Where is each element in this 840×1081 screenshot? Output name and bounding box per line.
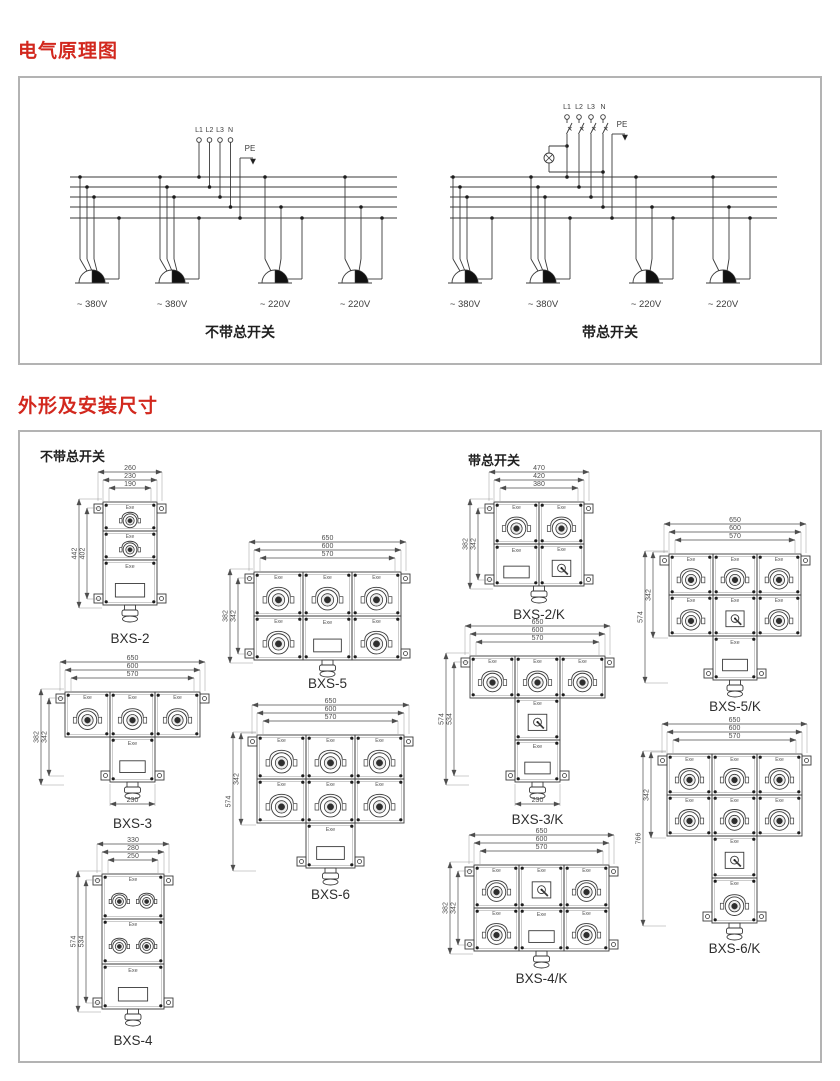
exe-label: Exe bbox=[512, 548, 521, 554]
dim-label: 600 bbox=[322, 543, 334, 550]
dim-label: 600 bbox=[325, 706, 337, 713]
wiring-diagram-canvas: L1L2L3NPE~ 380V~ 380V~ 220V~ 220V不带总开关L1… bbox=[20, 78, 818, 361]
exe-label: Exe bbox=[274, 575, 283, 581]
dim-label: 574 bbox=[638, 611, 645, 623]
mounting-ear bbox=[157, 594, 166, 603]
section-title-wiring: 电气原理图 bbox=[18, 36, 118, 63]
socket-icon bbox=[315, 794, 346, 817]
exe-label: Exe bbox=[492, 868, 501, 874]
voltage-label: ~ 380V bbox=[77, 299, 108, 310]
cable-gland bbox=[323, 868, 339, 885]
schematic-with-main-switch: L1L2L3NPE~ 380V~ 380V~ 220V~ 220V带总开关 bbox=[448, 104, 777, 340]
terminal-label: L2 bbox=[206, 127, 214, 134]
dim-label: 600 bbox=[127, 663, 139, 670]
mounting-ear bbox=[94, 504, 103, 513]
socket-icon bbox=[547, 517, 575, 538]
voltage-label: ~ 220V bbox=[340, 299, 371, 310]
socket-icon bbox=[136, 893, 156, 908]
mounting-ear bbox=[609, 867, 618, 876]
socket-icon bbox=[502, 517, 530, 538]
exe-label: Exe bbox=[537, 912, 546, 918]
model-caption: BXS-6 bbox=[311, 887, 350, 902]
exe-label: Exe bbox=[274, 619, 283, 625]
socket-icon bbox=[361, 631, 392, 654]
mounting-ear bbox=[404, 737, 413, 746]
socket-icon bbox=[765, 610, 793, 630]
nameplate bbox=[118, 988, 147, 1002]
dim-label: 574 bbox=[226, 796, 233, 808]
dimensions-panel: 不带总开关 带总开关 ExeExeExe260230190442402BXS-2… bbox=[18, 430, 822, 1063]
mounting-ear bbox=[248, 737, 257, 746]
exe-label: Exe bbox=[687, 557, 696, 563]
terminal-label: N bbox=[600, 104, 605, 111]
socket-icon bbox=[523, 671, 551, 692]
drawing-bxs-2: ExeExeExe260230190442402BXS-2 bbox=[72, 465, 167, 646]
nameplate bbox=[504, 566, 529, 578]
exe-label: Exe bbox=[730, 757, 739, 763]
socket-icon bbox=[266, 794, 297, 817]
mounting-ear bbox=[660, 556, 669, 565]
dim-label: 342 bbox=[42, 731, 49, 743]
socket-symbol bbox=[75, 175, 121, 283]
mounting-ear bbox=[401, 649, 410, 658]
section-title-dimensions: 外形及安装尺寸 bbox=[18, 391, 158, 418]
voltage-label: ~ 220V bbox=[260, 299, 291, 310]
dim-label: 230 bbox=[124, 473, 136, 480]
mounting-ear bbox=[757, 669, 766, 678]
schematic-caption: 带总开关 bbox=[582, 324, 638, 340]
exe-label: Exe bbox=[775, 757, 784, 763]
dim-label: 534 bbox=[447, 713, 454, 725]
mounting-ear bbox=[584, 575, 593, 584]
socket-icon bbox=[765, 569, 793, 589]
exe-label: Exe bbox=[537, 868, 546, 874]
exe-label: Exe bbox=[687, 598, 696, 604]
dim-label: 570 bbox=[322, 551, 334, 558]
exe-label: Exe bbox=[582, 911, 591, 917]
exe-label: Exe bbox=[731, 557, 740, 563]
rotary-switch-icon bbox=[532, 882, 551, 898]
dim-label: 190 bbox=[124, 481, 136, 488]
rotary-switch-icon bbox=[552, 560, 571, 576]
exe-label: Exe bbox=[129, 922, 138, 928]
nameplate bbox=[314, 639, 342, 652]
rotary-switch-icon bbox=[528, 714, 547, 730]
dim-label: 380 bbox=[533, 481, 545, 488]
mounting-ear bbox=[164, 998, 173, 1007]
socket-icon bbox=[315, 750, 346, 773]
dim-label: 650 bbox=[127, 655, 139, 662]
mounting-ear bbox=[355, 857, 364, 866]
exe-label: Exe bbox=[730, 881, 739, 887]
socket-icon bbox=[118, 709, 146, 730]
model-caption: BXS-4/K bbox=[516, 971, 568, 986]
dim-label: 570 bbox=[536, 844, 548, 851]
exe-label: Exe bbox=[83, 695, 92, 701]
model-caption: BXS-5 bbox=[308, 676, 347, 691]
socket-icon bbox=[765, 769, 793, 790]
dim-label: 260 bbox=[124, 465, 136, 472]
exe-label: Exe bbox=[326, 738, 335, 744]
exe-label: Exe bbox=[129, 877, 138, 883]
dim-label: 402 bbox=[80, 548, 87, 560]
exe-label: Exe bbox=[372, 619, 381, 625]
mounting-ear bbox=[245, 574, 254, 583]
socket-icon bbox=[720, 769, 748, 790]
drawing-bxs-3: ExeExeExeExe650600570382342230BXS-3 bbox=[34, 655, 210, 831]
dim-label: 534 bbox=[79, 936, 86, 948]
nameplate bbox=[317, 847, 345, 860]
socket-icon bbox=[266, 750, 297, 773]
drawing-bxs-6-k: ExeExeExeExeExeExeExeExe650600570766342B… bbox=[636, 717, 812, 956]
exe-label: Exe bbox=[277, 738, 286, 744]
exe-label: Exe bbox=[557, 505, 566, 511]
exe-label: Exe bbox=[557, 547, 566, 553]
socket-icon bbox=[675, 810, 703, 831]
mounting-ear bbox=[584, 504, 593, 513]
mounting-ear bbox=[56, 694, 65, 703]
exe-label: Exe bbox=[125, 564, 134, 570]
socket-icon bbox=[677, 569, 705, 589]
mounting-ear bbox=[658, 756, 667, 765]
group-label-without-switch: 不带总开关 bbox=[40, 446, 105, 465]
mounting-ear bbox=[297, 857, 306, 866]
exe-label: Exe bbox=[128, 741, 137, 747]
socket-icon bbox=[721, 569, 749, 589]
drawing-bxs-4: ExeExeExe330280250574534BXS-4 bbox=[71, 837, 174, 1048]
socket-icon bbox=[364, 750, 395, 773]
mounting-ear bbox=[245, 649, 254, 658]
socket-icon bbox=[136, 938, 156, 953]
exe-label: Exe bbox=[512, 505, 521, 511]
cable-gland bbox=[320, 660, 336, 677]
socket-icon bbox=[675, 769, 703, 790]
mounting-ear bbox=[93, 876, 102, 885]
voltage-label: ~ 380V bbox=[450, 299, 481, 310]
drawing-bxs-5: ExeExeExeExeExeExe650600570382342BXS-5 bbox=[223, 535, 411, 691]
dim-label: 342 bbox=[471, 538, 478, 550]
mounting-ear bbox=[703, 912, 712, 921]
terminal-label: L3 bbox=[587, 104, 595, 111]
dim-label: 382 bbox=[34, 731, 41, 743]
socket-icon bbox=[263, 587, 294, 610]
dim-label: 570 bbox=[127, 671, 139, 678]
exe-label: Exe bbox=[582, 868, 591, 874]
terminal-label: L1 bbox=[195, 127, 203, 134]
voltage-label: ~ 380V bbox=[157, 299, 188, 310]
dim-label: 650 bbox=[322, 535, 334, 542]
exe-label: Exe bbox=[533, 659, 542, 665]
socket-icon bbox=[720, 895, 748, 916]
dim-label: 230 bbox=[127, 797, 139, 804]
model-caption: BXS-6/K bbox=[709, 941, 761, 956]
exe-label: Exe bbox=[685, 757, 694, 763]
dim-label: 442 bbox=[72, 548, 79, 560]
exe-label: Exe bbox=[730, 640, 739, 646]
dim-label: 342 bbox=[451, 902, 458, 914]
cable-gland bbox=[534, 951, 550, 968]
mounting-ear bbox=[605, 658, 614, 667]
cable-gland bbox=[125, 1009, 141, 1026]
socket-icon bbox=[572, 881, 600, 902]
exe-label: Exe bbox=[128, 695, 137, 701]
exe-label: Exe bbox=[128, 968, 137, 974]
drawing-bxs-3-k: ExeExeExeExeExe650600570574534230BXS-3/K bbox=[439, 619, 615, 827]
terminal-label: L3 bbox=[216, 127, 224, 134]
dim-label: 570 bbox=[729, 733, 741, 740]
exe-label: Exe bbox=[685, 798, 694, 804]
dim-label: 330 bbox=[127, 837, 139, 844]
drawing-bxs-2-k: ExeExeExeExe470420380382342BXS-2/K bbox=[463, 465, 594, 622]
exe-label: Exe bbox=[126, 505, 135, 511]
voltage-label: ~ 220V bbox=[708, 299, 739, 310]
dim-label: 574 bbox=[71, 936, 78, 948]
exe-label: Exe bbox=[533, 701, 542, 707]
model-caption: BXS-3/K bbox=[512, 812, 564, 827]
exe-label: Exe bbox=[775, 557, 784, 563]
dim-label: 342 bbox=[234, 773, 241, 785]
socket-icon bbox=[163, 709, 191, 730]
socket-icon bbox=[677, 610, 705, 630]
socket-icon bbox=[263, 631, 294, 654]
exe-label: Exe bbox=[730, 839, 739, 845]
exe-label: Exe bbox=[533, 744, 542, 750]
mounting-ear bbox=[164, 876, 173, 885]
exe-label: Exe bbox=[578, 659, 587, 665]
dim-label: 650 bbox=[325, 698, 337, 705]
exe-label: Exe bbox=[730, 798, 739, 804]
cable-gland bbox=[531, 586, 547, 603]
dim-label: 470 bbox=[533, 465, 545, 472]
pe-label: PE bbox=[245, 144, 256, 153]
mounting-ear bbox=[101, 771, 110, 780]
exe-label: Exe bbox=[492, 911, 501, 917]
socket-icon bbox=[478, 671, 506, 692]
dim-label: 650 bbox=[532, 619, 544, 626]
socket-icon bbox=[109, 938, 129, 953]
socket-symbol bbox=[155, 175, 201, 283]
dim-label: 600 bbox=[729, 525, 741, 532]
socket-icon bbox=[482, 924, 510, 945]
terminal-label: L1 bbox=[563, 104, 571, 111]
dim-label: 420 bbox=[533, 473, 545, 480]
socket-icon bbox=[109, 893, 129, 908]
socket-symbol bbox=[706, 175, 752, 283]
mounting-ear bbox=[94, 594, 103, 603]
exe-label: Exe bbox=[323, 575, 332, 581]
mounting-ear bbox=[157, 504, 166, 513]
exe-label: Exe bbox=[375, 782, 384, 788]
dim-label: 570 bbox=[325, 714, 337, 721]
terminal-label: L2 bbox=[575, 104, 583, 111]
mounting-ear bbox=[609, 940, 618, 949]
schematic-caption: 不带总开关 bbox=[205, 324, 275, 340]
mounting-ear bbox=[802, 756, 811, 765]
dim-label: 382 bbox=[463, 538, 470, 550]
nameplate bbox=[120, 761, 145, 773]
socket-icon bbox=[312, 587, 343, 610]
exe-label: Exe bbox=[126, 534, 135, 540]
nameplate bbox=[115, 584, 144, 598]
socket-symbol bbox=[258, 175, 304, 283]
dim-label: 600 bbox=[536, 836, 548, 843]
dim-label: 230 bbox=[532, 797, 544, 804]
mounting-ear bbox=[461, 658, 470, 667]
mounting-ear bbox=[465, 867, 474, 876]
mounting-ear bbox=[757, 912, 766, 921]
exe-label: Exe bbox=[326, 782, 335, 788]
mounting-ear bbox=[485, 504, 494, 513]
socket-icon bbox=[568, 671, 596, 692]
dim-label: 382 bbox=[443, 902, 450, 914]
mounting-ear bbox=[704, 669, 713, 678]
drawing-bxs-5-k: ExeExeExeExeExeExeExe650600570574342BXS-… bbox=[638, 517, 811, 714]
group-label-with-switch: 带总开关 bbox=[468, 450, 520, 469]
socket-icon bbox=[572, 924, 600, 945]
dim-label: 574 bbox=[439, 713, 446, 725]
cable-gland bbox=[727, 680, 743, 697]
mounting-ear bbox=[93, 998, 102, 1007]
dimension-drawings-canvas: ExeExeExe260230190442402BXS-2ExeExeExeEx… bbox=[20, 432, 820, 1061]
model-caption: BXS-5/K bbox=[709, 699, 761, 714]
rotary-switch-icon bbox=[725, 852, 744, 868]
exe-label: Exe bbox=[323, 620, 332, 626]
dim-label: 342 bbox=[644, 789, 651, 801]
wiring-diagram-panel: L1L2L3NPE~ 380V~ 380V~ 220V~ 220V不带总开关L1… bbox=[18, 76, 822, 365]
socket-symbol bbox=[448, 175, 494, 283]
exe-label: Exe bbox=[277, 782, 286, 788]
exe-label: Exe bbox=[372, 575, 381, 581]
terminal-label: N bbox=[228, 127, 233, 134]
socket-symbol bbox=[629, 175, 675, 283]
exe-label: Exe bbox=[775, 598, 784, 604]
drawing-bxs-4-k: ExeExeExeExeExeExe650600570382342BXS-4/K bbox=[443, 828, 619, 986]
socket-icon bbox=[765, 810, 793, 831]
socket-icon bbox=[361, 587, 392, 610]
dim-label: 342 bbox=[646, 589, 653, 601]
socket-icon bbox=[482, 881, 510, 902]
mounting-ear bbox=[485, 575, 494, 584]
socket-icon bbox=[720, 810, 748, 831]
dim-label: 570 bbox=[729, 533, 741, 540]
exe-label: Exe bbox=[375, 738, 384, 744]
mounting-ear bbox=[401, 574, 410, 583]
dim-label: 766 bbox=[636, 833, 643, 845]
cable-gland bbox=[122, 605, 138, 622]
nameplate bbox=[723, 659, 748, 670]
mounting-ear bbox=[465, 940, 474, 949]
dim-label: 280 bbox=[127, 845, 139, 852]
voltage-label: ~ 380V bbox=[528, 299, 559, 310]
dim-label: 600 bbox=[729, 725, 741, 732]
catalog-page: 电气原理图 L1L2L3NPE~ 380V~ 380V~ 220V~ 220V不… bbox=[0, 0, 840, 1081]
exe-label: Exe bbox=[488, 659, 497, 665]
exe-label: Exe bbox=[775, 798, 784, 804]
mounting-ear bbox=[506, 771, 515, 780]
dim-label: 570 bbox=[532, 635, 544, 642]
socket-symbol bbox=[338, 175, 384, 283]
socket-icon bbox=[119, 541, 140, 556]
dim-label: 250 bbox=[127, 853, 139, 860]
socket-icon bbox=[364, 794, 395, 817]
dim-label: 650 bbox=[536, 828, 548, 835]
nameplate bbox=[525, 762, 550, 774]
mounting-ear bbox=[560, 771, 569, 780]
drawing-bxs-6: ExeExeExeExeExeExeExe650600570574342BXS-… bbox=[226, 698, 414, 902]
socket-icon bbox=[119, 512, 140, 527]
pe-label: PE bbox=[617, 120, 628, 129]
exe-label: Exe bbox=[173, 695, 182, 701]
rotary-switch-icon bbox=[726, 611, 744, 627]
dim-label: 650 bbox=[729, 517, 741, 524]
mounting-ear bbox=[801, 556, 810, 565]
socket-icon bbox=[73, 709, 101, 730]
schematic-without-main-switch: L1L2L3NPE~ 380V~ 380V~ 220V~ 220V不带总开关 bbox=[70, 127, 397, 340]
socket-symbol bbox=[526, 175, 572, 283]
exe-label: Exe bbox=[326, 827, 335, 833]
exe-label: Exe bbox=[731, 598, 740, 604]
mounting-ear bbox=[155, 771, 164, 780]
dim-label: 342 bbox=[231, 610, 238, 622]
model-caption: BXS-2 bbox=[110, 631, 149, 646]
model-caption: BXS-4 bbox=[113, 1033, 153, 1048]
voltage-label: ~ 220V bbox=[631, 299, 662, 310]
nameplate bbox=[529, 931, 554, 943]
dim-label: 650 bbox=[729, 717, 741, 724]
cable-gland bbox=[727, 923, 743, 940]
dim-label: 382 bbox=[223, 610, 230, 622]
dim-label: 600 bbox=[532, 627, 544, 634]
model-caption: BXS-3 bbox=[113, 816, 152, 831]
mounting-ear bbox=[200, 694, 209, 703]
